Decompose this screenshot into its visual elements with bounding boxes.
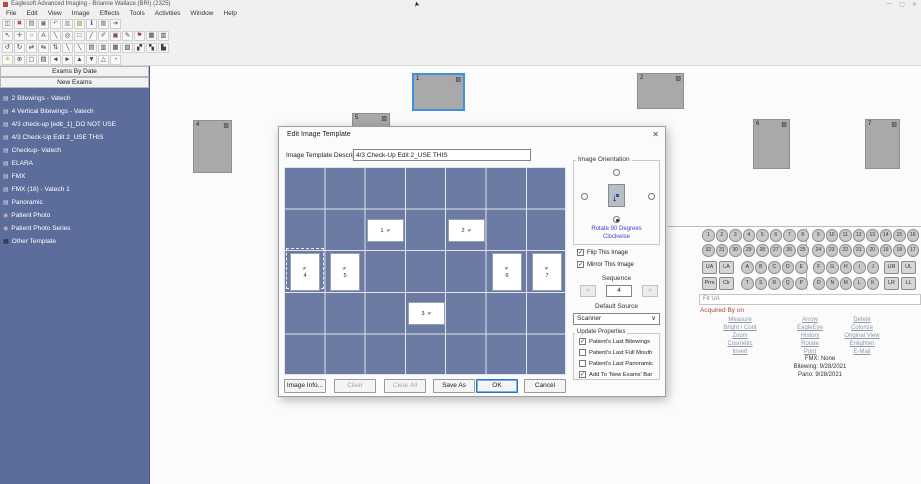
maximize-icon[interactable]: ▢ xyxy=(899,1,905,8)
primary-tooth-button[interactable]: N xyxy=(826,277,839,290)
image-icon: ▨ xyxy=(223,122,229,129)
upper-right-quadrant-button[interactable]: UR xyxy=(884,261,899,274)
tooth-button[interactable]: 22 xyxy=(839,244,852,257)
tile-number: 2 xyxy=(461,228,464,234)
sequence-decrement-button[interactable]: < xyxy=(580,285,596,297)
crop-icon[interactable]: ▢ xyxy=(26,55,37,65)
description-input[interactable] xyxy=(353,149,531,161)
exam-template-item[interactable]: ◉ Patient Photo xyxy=(0,209,149,222)
tile-grid-icon[interactable]: ▧ xyxy=(122,43,133,53)
rotate-ccw-icon[interactable]: ↺ xyxy=(2,43,13,53)
orientation-arrow-icon: ↓ xyxy=(612,193,617,204)
toolbar-row-3: ↺↻⇄⇆⇅╲╲▤▥▦▧▞▚▙ xyxy=(2,43,169,53)
image-history-summary: FMX: NoneBitewing: 9/28/2021Pano: 9/28/2… xyxy=(770,355,870,379)
image-icon: ▨ xyxy=(781,121,787,128)
frame-tool-icon[interactable]: ▥ xyxy=(158,31,169,41)
toolbar-row-4: ✳⊕▢▤◄►▲▼△◔ xyxy=(2,55,121,65)
tooth-button[interactable]: 28 xyxy=(756,244,769,257)
exam-template-item[interactable]: ▤ FMX xyxy=(0,170,149,183)
lower-right-quadrant-button[interactable]: LR xyxy=(884,277,899,290)
app-window: Eaglesoft Advanced Imaging - Brianne Wal… xyxy=(0,0,921,484)
flip-vertical-icon[interactable]: ⇅ xyxy=(50,43,61,53)
acquire-icon[interactable]: ▣ xyxy=(38,19,49,29)
exam-template-item[interactable]: ▤ 4 Vertical Bitewings - Vatech xyxy=(0,105,149,118)
exam-template-item[interactable]: ▦ Other Template xyxy=(0,235,149,248)
chevron-down-icon: ∨ xyxy=(651,314,656,324)
grid-tile-5[interactable]: ➢ 5 xyxy=(330,253,360,291)
checkbox-checked xyxy=(577,249,584,256)
grid-tile-3[interactable]: 3 ➢ xyxy=(408,302,445,325)
exam-template-item[interactable]: ▤ 2 Bitewings - Vatech xyxy=(0,92,149,105)
exam-template-item[interactable]: ▤ ELARA xyxy=(0,157,149,170)
image-number: 1 xyxy=(416,76,419,82)
template-label: Panoramic xyxy=(12,199,43,206)
measure-line-icon[interactable]: ╲ xyxy=(62,43,73,53)
print-icon[interactable]: ▤ xyxy=(26,19,37,29)
tile-number: 6 xyxy=(505,273,508,279)
lower-teeth-row: 32313029282726252423222120191817 xyxy=(702,244,920,257)
primary-tooth-button[interactable]: B xyxy=(755,261,768,274)
menu-item[interactable]: Window xyxy=(185,9,218,19)
primary-tooth-button[interactable]: I xyxy=(853,261,866,274)
ok-button[interactable]: OK xyxy=(476,379,518,393)
enhance-icon[interactable]: ✳ xyxy=(2,55,13,65)
rotate-90-link[interactable]: Rotate 90 Degrees Clockwise xyxy=(573,226,660,241)
toolbar-row-1: ◫✖▤▣↶▥▧ℹ▦➜ xyxy=(2,19,121,29)
add-to-new-exams-checkbox[interactable]: Add To 'New Exams' Bar xyxy=(579,371,652,378)
tooth-button[interactable]: 2 xyxy=(716,229,729,242)
tooth-button[interactable]: 1 xyxy=(702,229,715,242)
image-icon: ▨ xyxy=(381,115,387,122)
tooth-button[interactable]: 9 xyxy=(812,229,825,242)
template-label: 4/3 Check-Up Edit 2_USE THIS xyxy=(12,134,104,141)
tooth-button[interactable]: 10 xyxy=(826,229,839,242)
tooth-button[interactable]: 12 xyxy=(853,229,866,242)
template-label: 4/3 check-up [edit_1]_DO NOT USE xyxy=(12,121,116,128)
upper-arch-button[interactable]: UA xyxy=(702,261,717,274)
compare-icon[interactable]: ▞ xyxy=(134,43,145,53)
template-icon: ▤ xyxy=(3,96,9,102)
primary-tooth-button[interactable]: D xyxy=(782,261,795,274)
cancel-button[interactable]: Cancel xyxy=(524,379,566,393)
default-source-value: Scanner xyxy=(577,314,601,324)
image-icon: ▨ xyxy=(891,121,897,128)
tooth-position-field: Fit UA xyxy=(699,294,921,305)
canvas-image-1-selected[interactable]: 1 ▨ xyxy=(412,73,465,111)
upper-left-quadrant-button[interactable]: UL xyxy=(901,261,916,274)
pen-tool-icon[interactable]: ╱ xyxy=(86,31,97,41)
orientation-radio-bottom-selected[interactable] xyxy=(613,216,620,223)
default-source-label: Default Source xyxy=(573,303,660,310)
template-icon: ▦ xyxy=(3,239,9,245)
stamp-tool-icon[interactable]: ▣ xyxy=(110,31,121,41)
primary-tooth-button[interactable]: H xyxy=(840,261,853,274)
checkbox-checked xyxy=(579,338,586,345)
tile-image-icon: ➢ xyxy=(425,309,433,318)
template-label: Other Template xyxy=(12,238,56,245)
tile-image-icon: ➢ xyxy=(543,264,551,273)
tooth-button[interactable]: 31 xyxy=(716,244,729,257)
panel-divider xyxy=(668,226,921,227)
exam-template-item[interactable]: ▤ Panoramic xyxy=(0,196,149,209)
history-line: FMX: None xyxy=(770,355,870,363)
tooth-button[interactable]: 3 xyxy=(729,229,742,242)
tile-number: 3 xyxy=(421,311,424,317)
lower-arch-button[interactable]: LA xyxy=(719,261,734,274)
template-icon: ◉ xyxy=(3,213,8,219)
magnify-icon[interactable]: ○ xyxy=(26,31,37,41)
window-title: Eaglesoft Advanced Imaging - Brianne Wal… xyxy=(11,1,171,7)
panoramic-label: Patient's Last Panoramic xyxy=(589,361,653,367)
rotate-link-line1: Rotate 90 Degrees xyxy=(573,226,660,234)
primary-tooth-button[interactable]: J xyxy=(867,261,880,274)
zoom-in-icon[interactable]: ⊕ xyxy=(14,55,25,65)
bitewings-label: Patient's Last Bitewings xyxy=(589,339,650,345)
tooth-button[interactable]: 24 xyxy=(812,244,825,257)
template-icon: ◉ xyxy=(3,226,8,232)
tooth-button[interactable]: 8 xyxy=(797,229,810,242)
rotate-link-line2: Clockwise xyxy=(573,234,660,242)
exam-template-item[interactable]: ▤ Checkup- Vatech xyxy=(0,144,149,157)
tooth-button[interactable]: 13 xyxy=(866,229,879,242)
flag-tool-icon[interactable]: ⚑ xyxy=(134,31,145,41)
upper-teeth-row: 12345678910111213141516 xyxy=(702,229,920,242)
template-icon: ▤ xyxy=(3,174,9,180)
lower-left-quadrant-button[interactable]: LL xyxy=(901,277,916,290)
image-number: 6 xyxy=(756,121,759,127)
tooth-button[interactable]: 11 xyxy=(839,229,852,242)
tile-number: 5 xyxy=(343,273,346,279)
image-orientation-label: Image Orientation xyxy=(576,156,632,163)
menu-item[interactable]: Activities xyxy=(150,9,186,19)
text-tool-icon[interactable]: A xyxy=(38,31,49,41)
exam-template-item[interactable]: ▤ FMX (18) - Vatech 1 xyxy=(0,183,149,196)
tooth-button[interactable]: 27 xyxy=(770,244,783,257)
grid-tool-icon[interactable]: ▦ xyxy=(146,31,157,41)
sequence-increment-button[interactable]: > xyxy=(642,285,658,297)
edit-image-template-dialog: Edit Image Template ✕ Image Template Des… xyxy=(278,126,666,397)
template-icon: ▤ xyxy=(3,135,9,141)
tool-link[interactable]: Delete xyxy=(820,316,904,324)
canvas-image-2[interactable]: 2 ▨ xyxy=(637,73,684,109)
tile-single-icon[interactable]: ▤ xyxy=(86,43,97,53)
pan-icon[interactable]: ✛ xyxy=(14,31,25,41)
tooth-button[interactable]: 32 xyxy=(702,244,715,257)
tooth-button[interactable]: 5 xyxy=(756,229,769,242)
tooth-button[interactable]: 19 xyxy=(880,244,893,257)
template-label: Patient Photo Series xyxy=(11,225,70,232)
tooth-button[interactable]: 30 xyxy=(729,244,742,257)
tile-image-icon: ➢ xyxy=(341,264,349,273)
orientation-radio-top[interactable] xyxy=(613,169,620,176)
image-number: 2 xyxy=(640,75,643,81)
full-mouth-label: Patient's Last Full Mouth xyxy=(589,350,652,356)
primary-lower-row: TSRQPONMLK xyxy=(741,277,880,290)
grid-tile-7[interactable]: ➢ 7 xyxy=(532,253,562,291)
tile-double-icon[interactable]: ▥ xyxy=(98,43,109,53)
checkbox-checked xyxy=(577,261,584,268)
tooth-button[interactable]: 25 xyxy=(797,244,810,257)
layout-icon[interactable]: ▦ xyxy=(98,19,109,29)
forward-icon[interactable]: ► xyxy=(62,55,73,65)
primary-upper-row: ABCDEFGHIJ xyxy=(741,261,880,274)
primary-tooth-button[interactable]: O xyxy=(813,277,826,290)
primary-tooth-button[interactable]: Q xyxy=(782,277,795,290)
window-controls: — ▢ ✕ xyxy=(886,1,917,8)
delete-icon[interactable]: ✖ xyxy=(14,19,25,29)
image-number: 4 xyxy=(196,122,199,128)
template-icon: ▤ xyxy=(3,148,9,154)
update-properties-label: Update Properties xyxy=(575,329,627,335)
template-icon: ▤ xyxy=(3,200,9,206)
menu-bar: FileEditViewImageEffectsToolsActivitiesW… xyxy=(1,9,242,19)
tooth-button[interactable]: 15 xyxy=(893,229,906,242)
marker-tool-icon[interactable]: ✐ xyxy=(98,31,109,41)
menu-item[interactable]: Effects xyxy=(95,9,125,19)
primary-tooth-button[interactable]: L xyxy=(853,277,866,290)
tool-links-column-3: DeleteColorizeOriginal ViewEnlightenE-Ma… xyxy=(820,316,904,356)
last-full-mouth-checkbox[interactable]: Patient's Last Full Mouth xyxy=(579,349,652,356)
image-icon: ▨ xyxy=(455,76,461,83)
template-label: 2 Bitewings - Vatech xyxy=(12,95,71,102)
tooth-button[interactable]: 29 xyxy=(743,244,756,257)
primary-tooth-button[interactable]: M xyxy=(840,277,853,290)
exam-template-item[interactable]: ◉ Patient Photo Series xyxy=(0,222,149,235)
tile-image-icon: ➢ xyxy=(503,264,511,273)
primary-tooth-button[interactable]: E xyxy=(795,261,808,274)
rotate-180-icon[interactable]: ⇄ xyxy=(26,43,37,53)
template-label: Patient Photo xyxy=(11,212,50,219)
rotate-cw-icon[interactable]: ↻ xyxy=(14,43,25,53)
last-bitewings-checkbox[interactable]: Patient's Last Bitewings xyxy=(579,338,650,345)
series-icon[interactable]: ▚ xyxy=(146,43,157,53)
grid-tile-1[interactable]: 1 ➢ xyxy=(367,219,404,242)
mirror-image-checkbox[interactable]: Mirror This Image xyxy=(577,261,634,268)
tooth-button[interactable]: 14 xyxy=(880,229,893,242)
down-icon[interactable]: ▼ xyxy=(86,55,97,65)
preview-icon[interactable]: ▤ xyxy=(38,55,49,65)
grid-tile-6[interactable]: ➢ 6 xyxy=(492,253,522,291)
tool-link[interactable]: Original View xyxy=(820,332,904,340)
new-exams-label: Add To 'New Exams' Bar xyxy=(589,372,652,378)
image-number: 5 xyxy=(355,115,358,121)
line-tool-icon[interactable]: ╲ xyxy=(50,31,61,41)
grid-tile-4-selected[interactable]: ➢ 4 xyxy=(290,253,320,291)
primary-tooth-button[interactable]: P xyxy=(795,277,808,290)
default-source-dropdown[interactable]: Scanner ∨ xyxy=(573,313,660,325)
menu-item[interactable]: Help xyxy=(218,9,241,19)
tooth-button[interactable]: 16 xyxy=(907,229,920,242)
template-icon: ▤ xyxy=(3,122,9,128)
template-label: FMX xyxy=(12,173,26,180)
clear-all-button-disabled: Clear All xyxy=(384,379,426,393)
image-number: 7 xyxy=(868,121,871,127)
minimize-icon[interactable]: — xyxy=(886,1,892,8)
copy-icon[interactable]: ▥ xyxy=(62,19,73,29)
primary-tooth-button[interactable]: T xyxy=(741,277,754,290)
tile-number: 4 xyxy=(303,273,306,279)
menu-item[interactable]: Edit xyxy=(21,9,42,19)
primary-tooth-button[interactable]: R xyxy=(768,277,781,290)
mirror-label: Mirror This Image xyxy=(587,262,634,268)
annotate-line-icon[interactable]: ╲ xyxy=(74,43,85,53)
up-icon[interactable]: ▲ xyxy=(74,55,85,65)
template-grid[interactable]: 1 ➢ 2 ➢ 3 ➢ ➢ 4 ➢ 5 ➢ 6 xyxy=(284,167,566,375)
tooth-button[interactable]: 17 xyxy=(907,244,920,257)
back-icon[interactable]: ◄ xyxy=(50,55,61,65)
tool-link[interactable]: Colorize xyxy=(820,324,904,332)
exit-icon[interactable]: ➜ xyxy=(110,19,121,29)
primary-tooth-button[interactable]: A xyxy=(741,261,754,274)
exam-template-item[interactable]: ▤ 4/3 Check-Up Edit 2_USE THIS xyxy=(0,131,149,144)
undo-icon[interactable]: ↶ xyxy=(50,19,61,29)
flip-image-checkbox[interactable]: Flip This Image xyxy=(577,249,628,256)
menu-item[interactable]: Image xyxy=(67,9,95,19)
exam-sidebar: Exams By Date New Exams ▤ 2 Bitewings - … xyxy=(0,66,150,484)
sequence-label: Sequence xyxy=(573,275,660,282)
pencil-tool-icon[interactable]: ✎ xyxy=(122,31,133,41)
app-icon xyxy=(3,2,8,7)
exams-by-date-header[interactable]: Exams By Date xyxy=(0,66,149,77)
toolbar-row-2: ↖✛○A╲◎□╱✐▣✎⚑▦▥ xyxy=(2,31,169,41)
paste-icon[interactable]: ▧ xyxy=(74,19,85,29)
canvas-image-7[interactable]: 7 ▨ xyxy=(865,119,900,169)
dialog-title: Edit Image Template xyxy=(287,131,351,138)
ellipse-tool-icon[interactable]: ◎ xyxy=(62,31,73,41)
exam-template-list: ▤ 2 Bitewings - Vatech ▤ 4 Vertical Bite… xyxy=(0,92,149,248)
tile-number: 1 xyxy=(380,228,383,234)
checkbox-unchecked xyxy=(579,349,586,356)
tooth-button[interactable]: 26 xyxy=(783,244,796,257)
close-icon[interactable]: ✕ xyxy=(912,1,917,8)
template-label: Checkup- Vatech xyxy=(12,147,61,154)
pointer-icon[interactable]: ↖ xyxy=(2,31,13,41)
tooth-button[interactable]: 7 xyxy=(783,229,796,242)
menu-item[interactable]: File xyxy=(1,9,21,19)
top-chrome: Eaglesoft Advanced Imaging - Brianne Wal… xyxy=(0,0,921,66)
angle-icon[interactable]: △ xyxy=(98,55,109,65)
menu-item[interactable]: Tools xyxy=(125,9,150,19)
flip-label: Flip This Image xyxy=(587,250,628,256)
template-icon: ▤ xyxy=(3,109,9,115)
primary-tooth-button[interactable]: G xyxy=(826,261,839,274)
permanent-teeth-button[interactable]: Prm xyxy=(702,277,717,290)
primary-tooth-button[interactable]: K xyxy=(867,277,880,290)
last-panoramic-checkbox[interactable]: Patient's Last Panoramic xyxy=(579,360,653,367)
canvas-image-6[interactable]: 6 ▨ xyxy=(753,119,790,169)
primary-tooth-button[interactable]: C xyxy=(768,261,781,274)
tooth-button[interactable]: 4 xyxy=(743,229,756,242)
info-icon[interactable]: ℹ xyxy=(86,19,97,29)
sequence-value-field[interactable]: 4 xyxy=(606,285,632,297)
chart-icon[interactable]: ▙ xyxy=(158,43,169,53)
acquired-by-text: Acquired By on xyxy=(700,307,744,314)
tooth-button[interactable]: 21 xyxy=(853,244,866,257)
checkbox-checked xyxy=(579,371,586,378)
clear-button-disabled: Clear xyxy=(334,379,376,393)
history-line: Bitewing: 9/28/2021 xyxy=(770,363,870,371)
tooth-button[interactable]: 20 xyxy=(866,244,879,257)
menu-item[interactable]: View xyxy=(43,9,67,19)
tool-link[interactable]: Enlighten xyxy=(820,340,904,348)
tile-image-icon: ➢ xyxy=(384,226,392,235)
exam-template-item[interactable]: ▤ 4/3 check-up [edit_1]_DO NOT USE xyxy=(0,118,149,131)
tooth-button[interactable]: 23 xyxy=(826,244,839,257)
dialog-close-icon[interactable]: ✕ xyxy=(652,130,659,139)
clear-teeth-button[interactable]: Clr xyxy=(719,277,734,290)
new-exams-header[interactable]: New Exams xyxy=(0,77,149,88)
tile-image-icon: ➢ xyxy=(465,226,473,235)
grid-tile-2[interactable]: 2 ➢ xyxy=(448,219,485,242)
tile-image-icon: ➢ xyxy=(301,264,309,273)
save-as-button[interactable]: Save As xyxy=(433,379,475,393)
template-icon: ▤ xyxy=(3,187,9,193)
history-icon[interactable]: ◔ xyxy=(110,55,121,65)
template-icon: ▤ xyxy=(3,161,9,167)
title-bar: Eaglesoft Advanced Imaging - Brianne Wal… xyxy=(0,0,921,9)
canvas-image-4[interactable]: 4 ▨ xyxy=(193,120,232,173)
rectangle-tool-icon[interactable]: □ xyxy=(74,31,85,41)
save-icon[interactable]: ◫ xyxy=(2,19,13,29)
tooth-button[interactable]: 18 xyxy=(893,244,906,257)
image-icon: ▨ xyxy=(675,75,681,82)
primary-tooth-button[interactable]: F xyxy=(813,261,826,274)
template-label: ELARA xyxy=(12,160,33,167)
orientation-radio-right[interactable] xyxy=(648,193,655,200)
primary-tooth-button[interactable]: S xyxy=(755,277,768,290)
flip-horizontal-icon[interactable]: ⇆ xyxy=(38,43,49,53)
tile-number: 7 xyxy=(545,273,548,279)
tile-quad-icon[interactable]: ▦ xyxy=(110,43,121,53)
image-info-button[interactable]: Image Info... xyxy=(284,379,326,393)
checkbox-unchecked xyxy=(579,360,586,367)
orientation-radio-left[interactable] xyxy=(581,193,588,200)
template-label: 4 Vertical Bitewings - Vatech xyxy=(12,108,94,115)
template-label: FMX (18) - Vatech 1 xyxy=(12,186,70,193)
history-line: Pano: 9/28/2021 xyxy=(770,371,870,379)
tooth-button[interactable]: 6 xyxy=(770,229,783,242)
